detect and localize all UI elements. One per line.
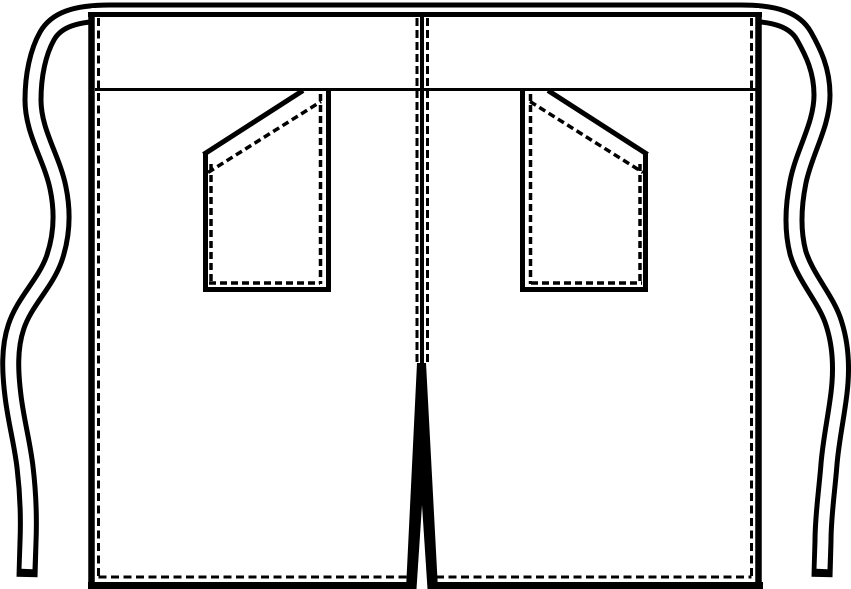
apron-line-art — [0, 0, 851, 589]
apron-drawing-page — [0, 0, 851, 589]
